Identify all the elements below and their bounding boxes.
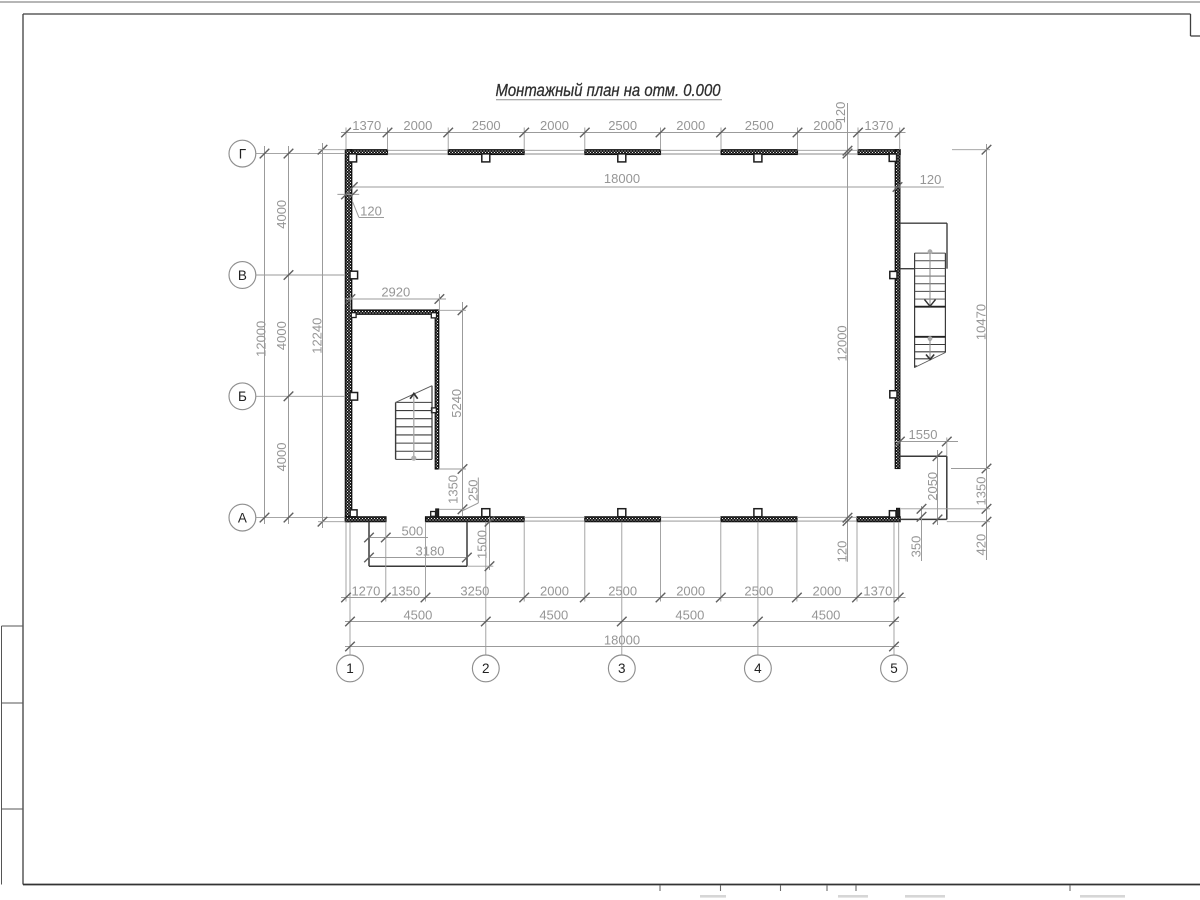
svg-text:4000: 4000 [274, 200, 289, 229]
svg-text:4: 4 [754, 661, 762, 676]
svg-text:1500: 1500 [474, 530, 489, 559]
svg-text:2500: 2500 [608, 118, 637, 133]
svg-text:500: 500 [402, 523, 424, 538]
svg-text:250: 250 [466, 479, 481, 501]
svg-text:2500: 2500 [472, 118, 501, 133]
svg-text:2050: 2050 [925, 472, 940, 501]
svg-text:2000: 2000 [540, 584, 569, 599]
svg-text:12000: 12000 [254, 321, 269, 357]
svg-text:120: 120 [835, 541, 850, 563]
svg-text:120: 120 [920, 172, 942, 187]
svg-text:1350: 1350 [974, 477, 989, 506]
svg-text:В: В [238, 268, 247, 283]
svg-text:1350: 1350 [391, 584, 420, 599]
svg-text:2000: 2000 [403, 118, 432, 133]
svg-text:18000: 18000 [604, 632, 640, 647]
svg-text:2500: 2500 [744, 584, 773, 599]
svg-text:1370: 1370 [863, 584, 892, 599]
svg-text:2920: 2920 [381, 284, 410, 299]
svg-text:4500: 4500 [811, 607, 840, 622]
svg-text:120: 120 [833, 102, 848, 124]
svg-text:350: 350 [909, 536, 924, 558]
svg-text:12000: 12000 [835, 325, 850, 361]
svg-text:1: 1 [346, 661, 354, 676]
svg-text:Б: Б [238, 389, 247, 404]
svg-text:2000: 2000 [676, 584, 705, 599]
svg-text:420: 420 [974, 534, 989, 556]
svg-text:4500: 4500 [675, 607, 704, 622]
svg-text:2500: 2500 [745, 118, 774, 133]
svg-text:Монтажный план на отм. 0.000: Монтажный план на отм. 0.000 [496, 80, 721, 100]
svg-text:18000: 18000 [604, 171, 640, 186]
svg-text:5: 5 [890, 661, 898, 676]
svg-text:1350: 1350 [445, 475, 460, 504]
svg-text:120: 120 [360, 204, 382, 219]
svg-text:2500: 2500 [608, 584, 637, 599]
svg-text:4000: 4000 [274, 442, 289, 471]
svg-text:1550: 1550 [909, 427, 938, 442]
svg-text:2000: 2000 [676, 118, 705, 133]
svg-text:2: 2 [482, 661, 490, 676]
svg-text:3: 3 [618, 661, 626, 676]
svg-text:4500: 4500 [539, 607, 568, 622]
svg-text:1370: 1370 [352, 118, 381, 133]
svg-text:3250: 3250 [460, 584, 489, 599]
svg-text:1370: 1370 [864, 118, 893, 133]
svg-text:1270: 1270 [351, 584, 380, 599]
svg-text:2000: 2000 [812, 584, 841, 599]
svg-text:12240: 12240 [310, 318, 325, 354]
svg-text:А: А [238, 510, 247, 525]
svg-text:3180: 3180 [416, 543, 445, 558]
svg-text:10470: 10470 [974, 304, 989, 340]
svg-text:2000: 2000 [540, 118, 569, 133]
svg-text:4000: 4000 [274, 321, 289, 350]
svg-text:4500: 4500 [403, 607, 432, 622]
svg-text:5240: 5240 [449, 389, 464, 418]
svg-text:Г: Г [239, 146, 247, 161]
